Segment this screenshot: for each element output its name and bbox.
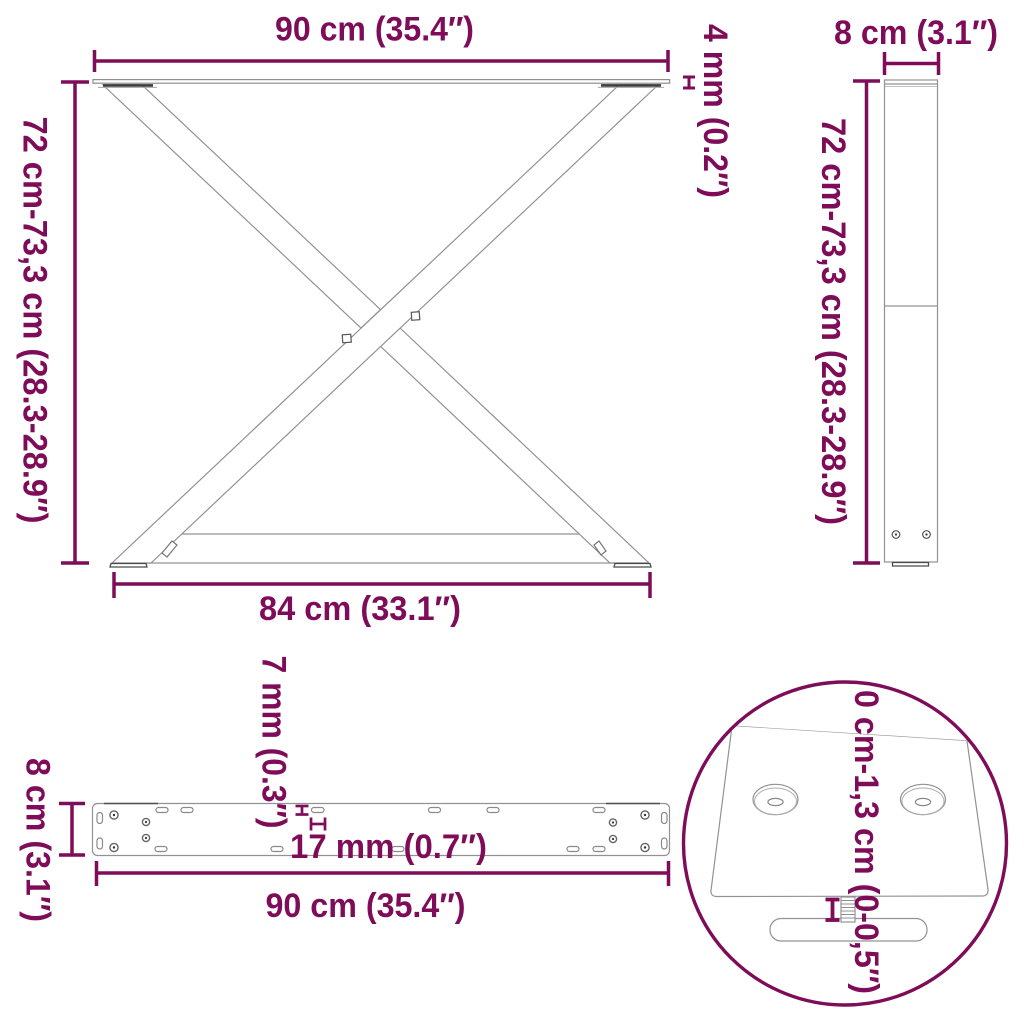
svg-text:7 mm (0.3″): 7 mm (0.3″) <box>255 656 293 829</box>
svg-text:8 cm (3.1″): 8 cm (3.1″) <box>19 758 57 922</box>
svg-text:84 cm (33.1″): 84 cm (33.1″) <box>259 590 461 628</box>
svg-text:4 mm (0.2″): 4 mm (0.2″) <box>696 24 734 198</box>
svg-text:72 cm-73,3 cm (28.3-28.9″): 72 cm-73,3 cm (28.3-28.9″) <box>16 117 54 524</box>
svg-text:90 cm (35.4″): 90 cm (35.4″) <box>266 887 466 925</box>
svg-text:17 mm (0.7″): 17 mm (0.7″) <box>290 828 487 866</box>
svg-text:72 cm-73,3 cm (28.3-28.9″): 72 cm-73,3 cm (28.3-28.9″) <box>814 118 852 525</box>
svg-text:0 cm-1,3 cm (0-0,5″): 0 cm-1,3 cm (0-0,5″) <box>847 690 885 994</box>
svg-text:8 cm (3.1″): 8 cm (3.1″) <box>834 14 998 52</box>
svg-text:90 cm (35.4″): 90 cm (35.4″) <box>275 11 474 49</box>
